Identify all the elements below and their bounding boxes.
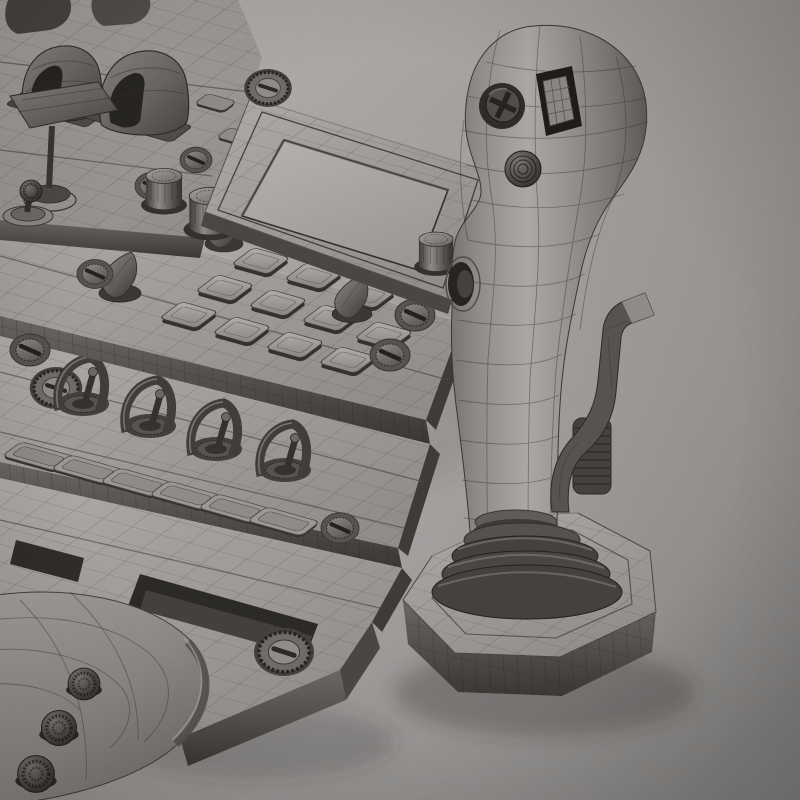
wireframe-render xyxy=(0,0,800,800)
render-canvas xyxy=(0,0,800,800)
vignette xyxy=(0,0,800,800)
